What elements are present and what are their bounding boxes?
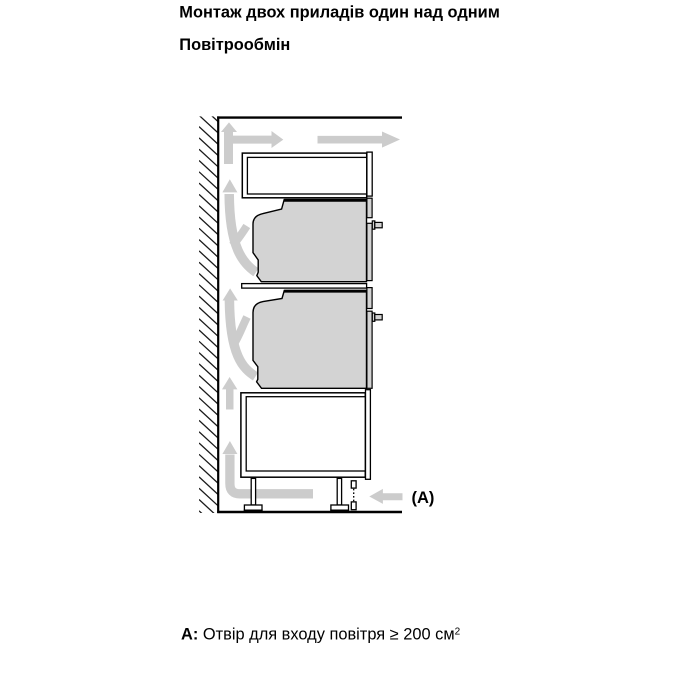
svg-text:(A): (A) (412, 489, 435, 507)
svg-text:Повітрообмін: Повітрообмін (179, 36, 290, 54)
svg-text:Монтаж двох приладів один над: Монтаж двох приладів один над одним (179, 4, 500, 22)
svg-text:A: Отвір для входу повітря ≥ 2: A: Отвір для входу повітря ≥ 200 см2 (181, 626, 461, 644)
